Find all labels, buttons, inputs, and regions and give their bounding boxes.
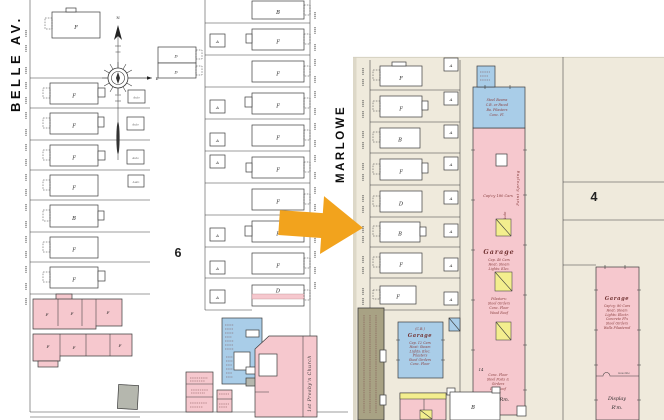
garage-title: Garage xyxy=(483,249,514,256)
b-building: B xyxy=(447,387,500,420)
house-letter: D xyxy=(398,202,404,208)
garage-note: Girders xyxy=(492,382,505,386)
garage-note: Lights: Elec. xyxy=(488,267,510,271)
small-blue-shed xyxy=(449,318,460,331)
display-room-label: R'm. xyxy=(610,405,622,411)
garage-note: Cap'cy: 80 Cars xyxy=(604,304,631,308)
house-letter: F xyxy=(71,186,76,192)
garage-shed: A xyxy=(444,258,458,271)
display-garage-building: Garage Cap'cy: 80 Cars Heat: Steam Light… xyxy=(594,265,641,420)
house-letter: B xyxy=(71,216,76,222)
house-letter: F xyxy=(398,76,403,82)
construction-note: Steel Beams xyxy=(487,98,508,102)
rowhouse-strip: F F F xyxy=(33,294,122,329)
house-letter: F xyxy=(275,168,280,174)
dwelling: F xyxy=(43,175,98,196)
garage-shed: A xyxy=(210,100,225,113)
house-letter: F xyxy=(398,170,403,176)
garage-code: (C.B.) xyxy=(415,327,425,331)
garage-shed: A xyxy=(444,58,458,71)
garage-letter: A xyxy=(449,297,453,302)
dwelling: D xyxy=(373,191,422,212)
small-pink-building xyxy=(186,372,213,412)
dwelling: D xyxy=(252,285,310,306)
house-letter: F xyxy=(71,124,76,130)
auto-shed: Auto xyxy=(128,175,144,187)
garage-title: Garage xyxy=(605,296,630,302)
dwelling: F xyxy=(373,253,422,273)
dwelling: F xyxy=(252,189,310,210)
dwelling: F xyxy=(252,61,310,82)
garage-letter: A xyxy=(449,162,453,167)
dwelling: F xyxy=(373,159,428,180)
dwelling: F xyxy=(43,83,105,104)
auto-shed-label: Auto xyxy=(132,180,140,184)
construction-note: Ba. Pilasters xyxy=(485,108,507,112)
gray-shed xyxy=(117,384,138,409)
dwelling: B xyxy=(373,222,426,242)
garage-note: Conc. Floor xyxy=(410,362,430,366)
block-number-6: 6 xyxy=(175,246,182,260)
sign-structure xyxy=(358,308,386,420)
dwelling: F xyxy=(246,157,310,178)
garage-letter: A xyxy=(215,105,219,110)
auto-shed-label: Auto xyxy=(131,156,139,160)
compass-rose: N E xyxy=(102,15,159,160)
house-letter: F xyxy=(118,343,122,348)
garage-note: Steel Girders xyxy=(488,302,510,306)
garage-note: Conc. Floor xyxy=(488,373,508,377)
auto-shed: Auto xyxy=(127,150,144,164)
cb-garage-building: (C.B.) Garage Cap. 12 Cars Heat: Steam L… xyxy=(396,322,445,378)
garage-letter: A xyxy=(449,130,453,135)
house-letter: F xyxy=(73,25,78,31)
auto-shed-label: Auto xyxy=(131,123,139,127)
paint-spraying-label: Paint Spraying xyxy=(515,170,520,207)
dwelling: F xyxy=(245,93,310,114)
dwelling: F xyxy=(43,145,105,166)
house-letter: F xyxy=(72,345,76,350)
dwelling: F xyxy=(252,253,310,274)
dwelling: F xyxy=(43,237,98,258)
garage-shed: A xyxy=(210,155,225,168)
house-letter: F xyxy=(398,107,403,113)
pink-yellow-building xyxy=(400,393,446,420)
garage-shed: A xyxy=(444,224,458,237)
garage-letter: A xyxy=(215,295,219,300)
garage-note: Walls Pilastered xyxy=(604,326,631,330)
dwelling: F xyxy=(45,8,100,38)
garage-note: Heat: Steam xyxy=(606,308,628,312)
auto-shed: Auto xyxy=(128,90,145,103)
house-letter: F xyxy=(71,248,76,254)
display-room-label: Display xyxy=(607,396,626,402)
dwelling: B xyxy=(373,128,420,148)
dwelling: B xyxy=(252,1,310,19)
garage-shed: A xyxy=(444,292,458,305)
garage-letter: A xyxy=(449,229,453,234)
elevator-box xyxy=(420,410,432,419)
garage-letter: A xyxy=(449,63,453,68)
garage-note: Wood Roof xyxy=(490,311,509,315)
garage-shed: A xyxy=(444,125,458,138)
garage-letter: A xyxy=(449,263,453,268)
presbyterian-church: 1st Presby'n Church xyxy=(255,336,317,417)
garage-title: Garage xyxy=(408,333,433,339)
house-letter: F xyxy=(395,295,400,301)
elevator-box xyxy=(496,219,511,236)
garage-note: Heat: Steam xyxy=(488,263,510,267)
church-label: 1st Presby'n Church xyxy=(307,355,313,412)
dwelling: B xyxy=(43,205,104,227)
garage-letter: A xyxy=(449,196,453,201)
elevator-box xyxy=(495,272,512,291)
garage-letter: A xyxy=(215,266,219,271)
garage-shed: A xyxy=(444,92,458,105)
garage-shed: A xyxy=(210,261,225,274)
garage-note: Steel Posts & xyxy=(487,378,509,382)
auto-shed-label: Auto xyxy=(132,96,140,100)
gasoline-label: Gasoline xyxy=(618,371,630,375)
house-letter: F xyxy=(275,72,280,78)
garage-shed: A xyxy=(210,228,225,241)
house-letter: F xyxy=(275,200,280,206)
house-letter: F xyxy=(71,278,76,284)
garage-shed: A xyxy=(210,133,225,146)
small-pink-building xyxy=(217,390,232,412)
left-map-sheet: BELLE AV. 6 N E xyxy=(8,0,348,417)
garage-shed: A xyxy=(444,157,458,170)
house-letter: B xyxy=(275,10,280,16)
garage-note: Conc. Floor xyxy=(489,306,509,310)
garage-letter: A xyxy=(215,39,219,44)
house-letter: F xyxy=(71,156,76,162)
street-label-marlowe: MARLOWE xyxy=(335,105,347,183)
rowhouse-strip: F F F xyxy=(33,334,132,367)
garage-shed: A xyxy=(444,191,458,204)
elevator-box xyxy=(496,322,511,340)
garage-shed: A xyxy=(210,34,225,47)
construction-note: Conc. Fl. xyxy=(490,113,505,117)
house-letter: F xyxy=(275,104,280,110)
house-letter: F xyxy=(71,94,76,100)
house-letter: F xyxy=(275,264,280,270)
sanborn-map-comparison: BELLE AV. 6 N E xyxy=(0,0,664,420)
garage-note: Lights: Electr. xyxy=(604,313,629,317)
house-letter: B xyxy=(470,405,475,411)
house-letter: B xyxy=(397,232,402,238)
garage-letter: A xyxy=(215,138,219,143)
compass-north-label: N xyxy=(116,15,120,20)
main-garage-building: Steel Beams C.B. or Faced Ba. Pilasters … xyxy=(471,66,527,416)
garage-letter: A xyxy=(215,233,219,238)
garage-note: Concrete Fl's xyxy=(606,317,629,321)
house-letter: B xyxy=(397,138,402,144)
house-letter: F xyxy=(106,310,110,315)
dwelling: F xyxy=(43,267,105,288)
block-number-4: 4 xyxy=(591,190,598,204)
house-letter: D xyxy=(275,289,281,295)
garage-letter: A xyxy=(449,97,453,102)
width-dimension: 14 xyxy=(478,367,484,372)
house-letter: F xyxy=(45,312,49,317)
garage-note: Steel Girders xyxy=(606,322,628,326)
garage-shed: A xyxy=(210,290,225,303)
rear-dwelling-pair: D D xyxy=(158,47,202,78)
garage-note: Pilasters: xyxy=(490,297,507,301)
house-letter: F xyxy=(46,344,50,349)
house-letter: F xyxy=(70,311,74,316)
dwelling: F xyxy=(373,96,428,117)
house-letter: F xyxy=(398,263,403,269)
garage-letter: A xyxy=(215,160,219,165)
auto-shed: Auto xyxy=(127,117,144,130)
house-letter: F xyxy=(275,136,280,142)
dwelling: F xyxy=(252,125,310,146)
right-map-sheet: 4 F F B F D B xyxy=(353,57,664,420)
dwelling: F xyxy=(43,113,104,134)
house-letter: F xyxy=(275,40,280,46)
garage-note: Cap. 40 Cars xyxy=(488,258,510,262)
street-label-belle: BELLE AV. xyxy=(8,15,23,112)
construction-note: C.B. or Faced xyxy=(486,103,509,107)
capacity-label: Cap'cy 180 Cars xyxy=(483,194,513,198)
dwelling: F xyxy=(246,29,310,50)
